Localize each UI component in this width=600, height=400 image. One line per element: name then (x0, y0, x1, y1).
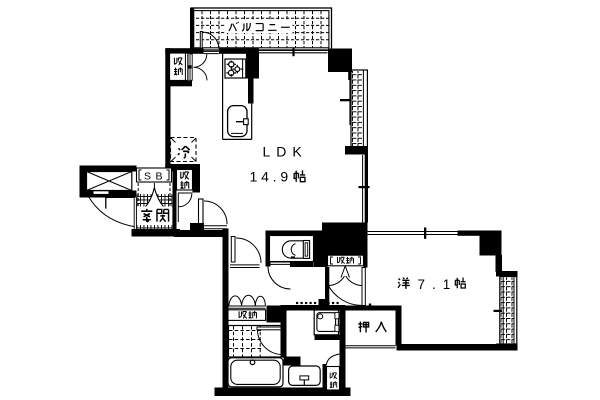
svg-text:LDK: LDK (263, 144, 308, 160)
svg-text:7.1: 7.1 (418, 277, 458, 292)
svg-text:14.9: 14.9 (250, 169, 292, 185)
svg-text:SB: SB (144, 171, 167, 183)
